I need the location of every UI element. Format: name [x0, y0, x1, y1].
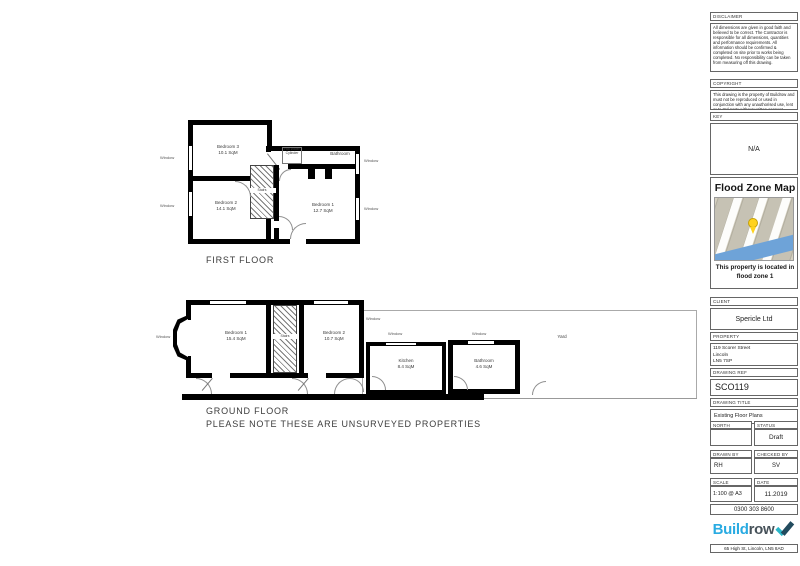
first-floor-plan: Stairs Bedroom 3 10.1 SqM Bedroom 2 14.1… [186, 118, 376, 248]
window-mark [314, 300, 348, 305]
room-label-yard: Yard [542, 334, 582, 340]
cylinder-label: Hot Water Cylinder [282, 147, 302, 164]
ground-floor-plan: Stairs Bedroom 1 15.4 SqM Bedroom 2 10.7 [182, 298, 702, 408]
drawn-by-header: DRAWN BY [710, 450, 752, 458]
drawing-ref-header: DRAWING REF [710, 368, 798, 377]
scale-header: SCALE [710, 478, 752, 486]
door-opening [290, 239, 306, 244]
checked-by-value: SV [754, 458, 798, 474]
window-mark [386, 342, 416, 346]
room-label-bathroom: Bathroom 4.6 SqM [458, 358, 510, 370]
date-value: 11.2019 [754, 486, 798, 502]
unsurveyed-note: PLEASE NOTE THESE ARE UNSURVEYED PROPERT… [206, 419, 481, 429]
room-name: Bedroom 2 [215, 200, 237, 205]
door-opening [212, 373, 230, 378]
drawn-by-value: RH [710, 458, 752, 474]
north-cell [710, 429, 752, 446]
date-header: DATE [754, 478, 798, 486]
window-mark [188, 146, 193, 170]
phone-number: 0300 303 8600 [710, 504, 798, 515]
checkmark-icon [777, 521, 795, 537]
ground-floor-title: GROUND FLOOR [206, 406, 289, 416]
window-label: Window [156, 334, 170, 339]
copyright-header: COPYRIGHT [710, 79, 798, 88]
property-header: PROPERTY [710, 332, 798, 341]
north-header: NORTH [710, 421, 752, 429]
drawing-ref-value: SCO119 [710, 379, 798, 396]
wall-segment [266, 305, 271, 373]
window-mark [355, 154, 360, 174]
window-mark [355, 198, 360, 220]
property-line3: LN5 7SP [713, 359, 795, 366]
door-arc [334, 378, 350, 394]
property-value: 119 Scorer Street Lincoln LN5 7SP [710, 343, 798, 366]
status-value: Draft [754, 429, 798, 446]
stairs-label: Stairs [248, 188, 276, 193]
flood-zone-caption: This property is located in flood zone 1 [715, 264, 795, 282]
room-label-bedroom1: Bedroom 1 12.7 SqM [294, 202, 352, 214]
flood-zone-title: Flood Zone Map [711, 181, 798, 195]
status-header: STATUS [754, 421, 798, 429]
window-label: Window [160, 203, 174, 208]
room-label-kitchen: Kitchen 8.4 SqM [378, 358, 434, 370]
window-mark [210, 300, 246, 305]
logo-text-row: row [749, 521, 775, 538]
room-area: 12.7 SqM [313, 208, 332, 213]
company-address: 65 High St, Lincoln, LN5 8AD [710, 544, 798, 553]
room-area: 14.1 SqM [216, 206, 235, 211]
room-name: Bedroom 1 [312, 202, 334, 207]
window-mark [468, 340, 494, 345]
scale-value: 1:100 @ A3 [710, 486, 752, 502]
logo-text-build: Build [713, 521, 749, 538]
room-label-bedroom3: Bedroom 3 10.1 SqM [200, 144, 256, 156]
wall-segment [274, 165, 279, 221]
window-label: Window [366, 316, 380, 321]
room-area: 8.4 SqM [398, 364, 415, 369]
wall-segment [193, 176, 251, 181]
window-label: Window [472, 331, 486, 336]
room-area: 4.6 SqM [476, 364, 493, 369]
window-label: Window [364, 158, 378, 163]
stairs-label: Stairs [271, 334, 299, 339]
stairs-hatch [273, 305, 297, 373]
first-floor-title: FIRST FLOOR [206, 255, 274, 265]
window-label: Window [160, 155, 174, 160]
checked-by-header: CHECKED BY [754, 450, 798, 458]
property-line1: 119 Scorer Street [713, 346, 795, 353]
buildrow-logo: Buildrow [710, 516, 798, 542]
copyright-text: This drawing is the property of Buildrow… [710, 90, 798, 110]
window-label: Window [364, 206, 378, 211]
room-name: Bathroom [474, 358, 494, 363]
wall-segment [274, 228, 279, 244]
boundary-line [484, 398, 697, 399]
room-label-bedroom2: Bedroom 2 14.1 SqM [198, 200, 254, 212]
map-pin-tail [750, 227, 756, 234]
flood-zone-section: Flood Zone Map This property is located … [710, 177, 798, 289]
room-label-bathroom: Bathroom [324, 151, 356, 157]
window-mark [188, 192, 193, 216]
boundary-wall [182, 394, 484, 400]
flood-zone-map [714, 197, 794, 261]
key-header: KEY [710, 112, 798, 121]
room-name: Bedroom 1 [225, 330, 247, 335]
drawing-sheet: Stairs Bedroom 3 10.1 SqM Bedroom 2 14.1… [0, 0, 800, 566]
room-name: Kitchen [398, 358, 413, 363]
room-label-bedroom1: Bedroom 1 15.4 SqM [206, 330, 266, 342]
room-label-bedroom2: Bedroom 2 10.7 SqM [304, 330, 364, 342]
room-area: 10.7 SqM [324, 336, 343, 341]
window-label: Window [388, 331, 402, 336]
room-area: 10.1 SqM [218, 150, 237, 155]
disclaimer-text: All dimensions are given in good faith a… [710, 23, 798, 72]
door-opening [308, 373, 326, 378]
client-header: CLIENT [710, 297, 798, 306]
client-value: Spericle Ltd [710, 308, 798, 330]
chimney-recess [315, 169, 325, 179]
drawing-title-header: DRAWING TITLE [710, 398, 798, 407]
checkmark-arm-long [781, 521, 794, 536]
room-name: Bedroom 2 [323, 330, 345, 335]
disclaimer-header: DISCLAIMER [710, 12, 798, 21]
room-name: Bedroom 3 [217, 144, 239, 149]
key-value: N/A [710, 123, 798, 175]
room-area: 15.4 SqM [226, 336, 245, 341]
